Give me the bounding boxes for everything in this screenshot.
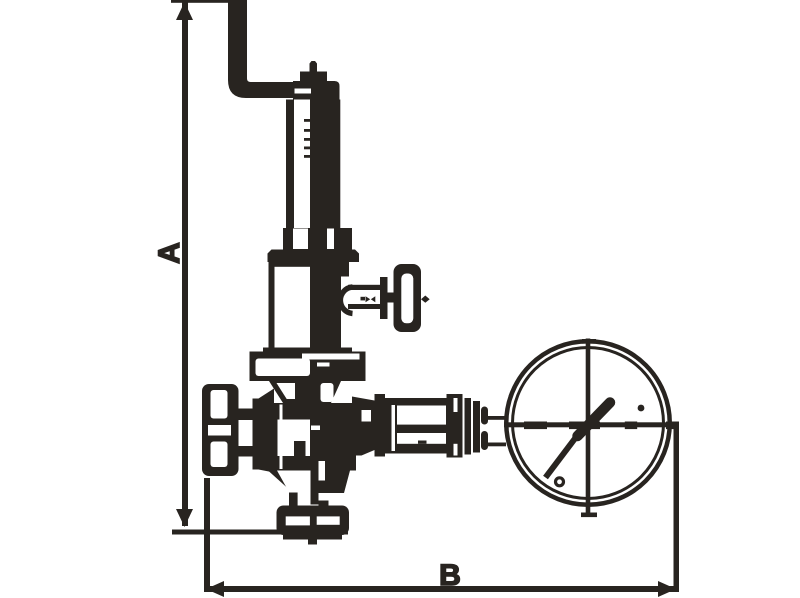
svg-text:A: A bbox=[153, 242, 186, 264]
svg-text:B: B bbox=[439, 559, 461, 592]
